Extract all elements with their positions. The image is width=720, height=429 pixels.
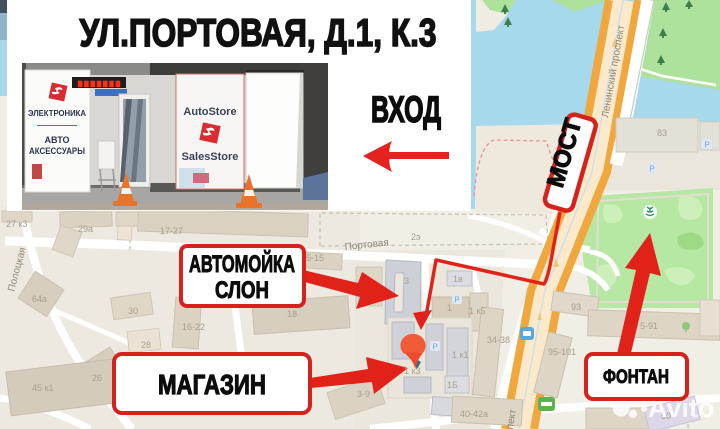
svg-text:26: 26 [92,373,102,383]
svg-text:3-9: 3-9 [357,389,370,399]
svg-text:▮▮▮▮▮▮▮: ▮▮▮▮▮▮▮ [77,79,121,88]
svg-text:93: 93 [571,302,581,312]
svg-text:1в: 1в [453,274,463,284]
svg-text:Р: Р [454,295,459,304]
svg-text:АКСЕССУАРЫ: АКСЕССУАРЫ [29,146,85,156]
svg-text:30: 30 [128,306,138,316]
svg-text:ВХОД: ВХОД [371,89,441,130]
svg-text:1 к3: 1 к3 [404,366,420,376]
svg-text:28: 28 [141,340,151,350]
svg-text:1: 1 [447,303,452,313]
svg-text:29а: 29а [78,224,93,234]
svg-text:ФОНТАН: ФОНТАН [603,367,669,388]
svg-text:64а: 64а [32,294,47,304]
svg-text:95-101: 95-101 [548,347,576,357]
svg-text:1 к1: 1 к1 [452,350,468,360]
svg-text:17-27: 17-27 [160,226,183,236]
svg-text:1 к5: 1 к5 [469,306,485,316]
svg-text:83: 83 [657,128,667,138]
svg-text:МАГАЗИН: МАГАЗИН [158,369,266,400]
svg-text:5-91: 5-91 [640,321,658,331]
svg-text:Р: Р [432,342,437,351]
svg-text:АВТО: АВТО [45,135,70,145]
svg-text:ЭЛЕКТРОНИКА: ЭЛЕКТРОНИКА [28,109,86,118]
svg-text:45 к1: 45 к1 [32,383,53,393]
svg-text:34-38: 34-38 [487,335,510,345]
svg-text:AutoStore: AutoStore [183,106,236,118]
svg-text:АВТОМОЙКА: АВТОМОЙКА [189,250,295,278]
svg-text:18: 18 [287,309,297,319]
svg-text:2э: 2э [411,232,421,242]
svg-text:СЛОН: СЛОН [215,277,269,304]
svg-text:16-22: 16-22 [182,322,205,332]
svg-text:3: 3 [404,276,409,286]
svg-text:1Б: 1Б [447,380,458,390]
svg-text:SalesStore: SalesStore [182,151,239,163]
svg-text:40-42а: 40-42а [460,409,488,419]
svg-text:Р: Р [649,164,654,173]
svg-text:27 к3: 27 к3 [6,219,27,229]
svg-text:Р: Р [704,140,709,149]
svg-text:5-15: 5-15 [306,253,324,263]
svg-text:УЛ.ПОРТОВАЯ, Д.1, К.3: УЛ.ПОРТОВАЯ, Д.1, К.3 [80,12,437,55]
